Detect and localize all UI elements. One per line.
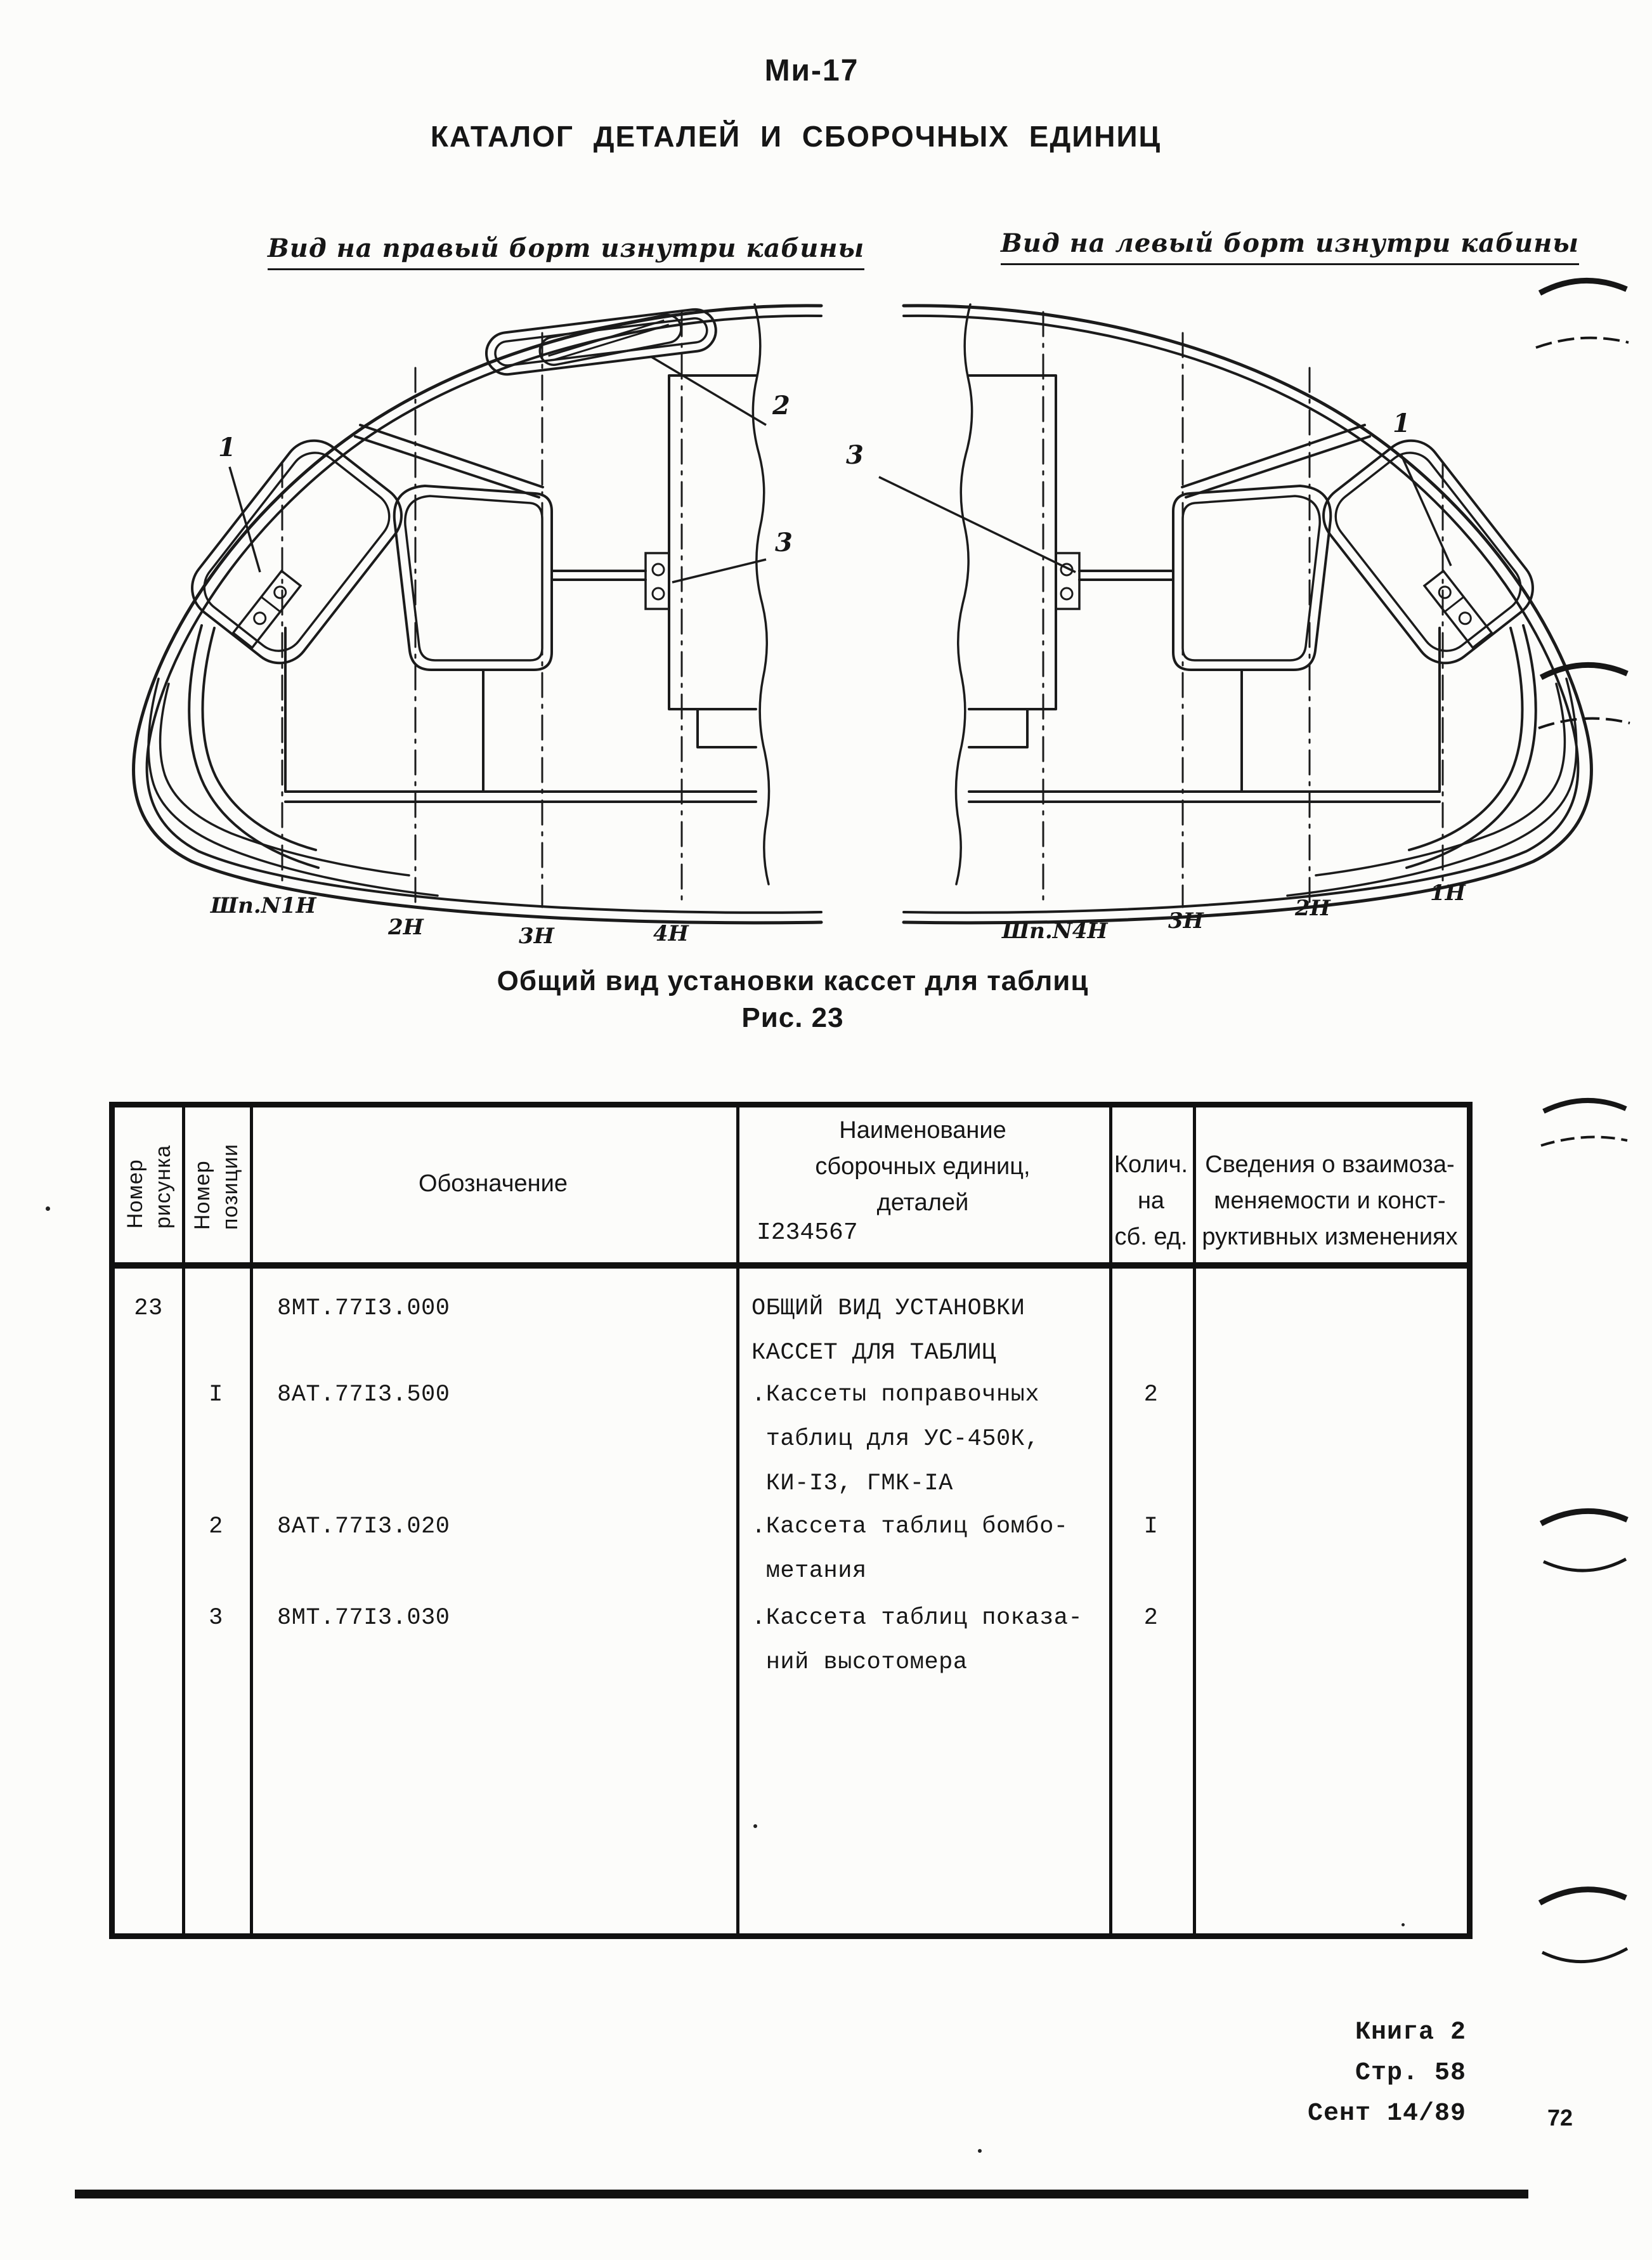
- cell-position-number: 2: [182, 1505, 250, 1549]
- column-header-quantity: Колич. на сб. ед.: [1109, 1147, 1193, 1255]
- footer-date: Сент 14/89: [1205, 2100, 1466, 2128]
- scan-speck: [1402, 1923, 1405, 1926]
- sheet-number: 72: [1547, 2105, 1573, 2131]
- column-header-name-note: I234567: [757, 1219, 858, 1246]
- cell-position-number: 3: [182, 1596, 250, 1640]
- callout-3-leader: [672, 559, 766, 582]
- right-board-view-label: Вид на правый борт изнутри кабины: [268, 233, 864, 270]
- figure-caption: Общий вид установки кассет для таблиц Ри…: [472, 963, 1113, 1036]
- footer-book: Книга 2: [1205, 2018, 1466, 2047]
- column-header-position-number: Номер позиции: [185, 1120, 248, 1253]
- aircraft-type-title: Ми-17: [0, 53, 1623, 88]
- catalog-page: Ми-17 КАТАЛОГ ДЕТАЛЕЙ И СБОРОЧНЫХ ЕДИНИЦ…: [0, 0, 1652, 2260]
- right-board-diagram: [95, 273, 824, 913]
- column-divider: [250, 1107, 253, 1933]
- header-divider: [115, 1262, 1467, 1269]
- footer-page: Стр. 58: [1205, 2059, 1466, 2087]
- cell-designation: 8АТ.77I3.020: [277, 1505, 450, 1549]
- station-label: 2Н: [388, 915, 424, 940]
- cell-name: .Кассета таблиц показа- ний высотомера: [751, 1596, 1107, 1685]
- cell-name: .Кассеты поправочных таблиц для УС-450К,…: [751, 1373, 1107, 1506]
- column-header-figure-number: Номер рисунка: [117, 1120, 181, 1253]
- station-label: 1Н: [1430, 880, 1466, 906]
- callout-number: 1: [218, 433, 236, 462]
- left-board-view-label: Вид на левый борт изнутри кабины: [1001, 228, 1579, 265]
- callout-number: 3: [846, 440, 864, 470]
- scan-speck: [46, 1206, 50, 1211]
- cell-quantity: 2: [1109, 1373, 1193, 1417]
- cell-figure-number: 23: [115, 1286, 182, 1331]
- cell-position-number: I: [182, 1373, 250, 1417]
- page-title: КАТАЛОГ ДЕТАЛЕЙ И СБОРОЧНЫХ ЕДИНИЦ: [0, 119, 1592, 153]
- callout-number: 3: [775, 528, 793, 558]
- cell-name: .Кассета таблиц бомбо- метания: [751, 1505, 1107, 1593]
- column-header-designation: Обозначение: [250, 1166, 736, 1202]
- station-label: 2Н: [1295, 896, 1330, 921]
- callout-number: 1: [1393, 408, 1410, 438]
- cell-quantity: 2: [1109, 1596, 1193, 1640]
- column-divider: [736, 1107, 739, 1933]
- scan-speck: [753, 1824, 757, 1828]
- station-label: Шп.N1Н: [211, 893, 316, 918]
- cell-designation: 8АТ.77I3.500: [277, 1373, 450, 1417]
- parts-table: Номер рисунка Номер позиции Обозначение …: [109, 1102, 1473, 1939]
- left-board-diagram: [843, 273, 1617, 913]
- callout-3-leader: [879, 477, 1076, 572]
- cell-quantity: I: [1109, 1505, 1193, 1549]
- figure-number: Рис. 23: [472, 1000, 1113, 1036]
- cell-name: ОБЩИЙ ВИД УСТАНОВКИ КАССЕТ ДЛЯ ТАБЛИЦ: [751, 1286, 1107, 1375]
- cell-designation: 8МТ.77I3.030: [277, 1596, 450, 1640]
- station-label: 4Н: [653, 921, 689, 946]
- scan-binding-marks: [1522, 254, 1649, 1998]
- callout-number: 2: [772, 391, 790, 421]
- scan-speck: [978, 2149, 982, 2153]
- station-label: 3Н: [1168, 908, 1204, 934]
- footer-rule: [75, 2190, 1528, 2198]
- station-label: 3Н: [519, 924, 554, 949]
- cell-designation: 8МТ.77I3.000: [277, 1286, 450, 1331]
- column-header-notes: Сведения о взаимоза- меняемости и конст-…: [1193, 1147, 1467, 1255]
- column-header-name: Наименование сборочных единиц, деталей: [736, 1113, 1109, 1221]
- figure-caption-text: Общий вид установки кассет для таблиц: [472, 963, 1113, 1000]
- station-label: Шп.N4Н: [1002, 918, 1108, 944]
